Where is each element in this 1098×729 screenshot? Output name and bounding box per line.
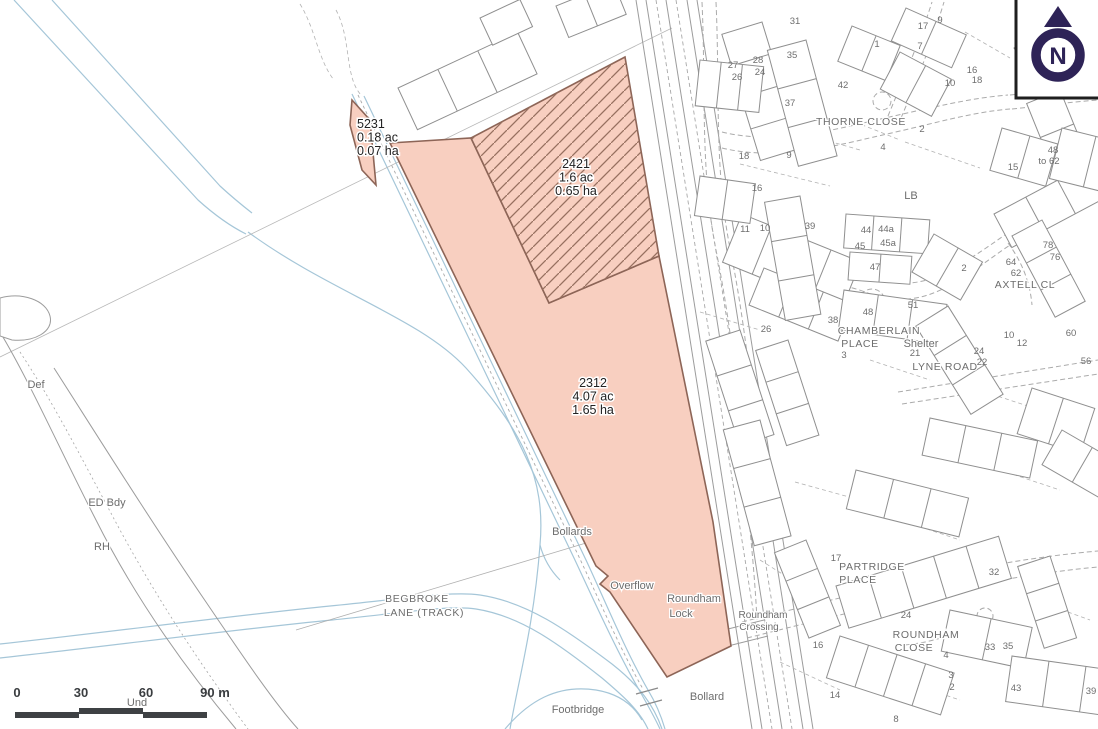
house-number: 17 <box>918 21 929 32</box>
street-label: PLACE <box>839 574 876 586</box>
house-number: 45a <box>880 238 897 249</box>
house-number: 35 <box>1003 641 1014 652</box>
house-number: 12 <box>1017 338 1028 349</box>
house-number: 11 <box>740 224 750 235</box>
house-number: 9 <box>786 150 791 161</box>
scale-label: 0 <box>13 685 20 700</box>
house-number: 78 <box>1043 240 1054 251</box>
scale-label: 90 m <box>200 685 230 700</box>
house-number: 76 <box>1050 252 1061 263</box>
house-number: 4 <box>943 650 948 661</box>
house-number: 10 <box>945 78 956 89</box>
street-label: PLACE <box>841 338 878 350</box>
house-number: 35 <box>787 50 798 61</box>
feature-label: Roundham <box>667 593 721 605</box>
house-number: 51 <box>908 300 919 311</box>
house-number: 42 <box>838 80 849 91</box>
street-label: THORNE CLOSE <box>816 116 906 128</box>
house-number: 3 <box>841 350 846 361</box>
parcel-label-5231: 0.07 ha <box>357 144 399 158</box>
house-number: 56 <box>1081 356 1092 367</box>
house-number: 38 <box>828 315 839 326</box>
house-number: 27 <box>728 60 739 71</box>
house-number: 7 <box>917 41 922 52</box>
house-number: 18 <box>972 75 983 86</box>
street-label: CLOSE <box>895 642 934 654</box>
house-number: 26 <box>761 324 772 335</box>
house-number: 48 <box>863 307 874 318</box>
feature-label: RH <box>94 541 110 553</box>
parcel-label-5231: 0.18 ac <box>357 131 398 145</box>
house-number: 45 <box>855 241 866 252</box>
map-canvas: 52310.18 ac0.07 ha24211.6 ac0.65 ha23124… <box>0 0 1098 729</box>
house-number: 3 <box>948 670 953 681</box>
house-number: 24 <box>755 67 766 78</box>
street-label: LYNE ROAD <box>912 361 977 373</box>
house-number: 16 <box>813 640 824 651</box>
building-block <box>846 470 968 537</box>
parcel-label-2312: 2312 <box>579 376 607 390</box>
street-label: PARTRIDGE <box>839 561 905 573</box>
north-letter: N <box>1049 43 1066 70</box>
house-number: 24 <box>901 610 912 621</box>
house-number: 16 <box>752 183 763 194</box>
scale-label: 30 <box>74 685 88 700</box>
feature-label: Bollards <box>552 526 592 538</box>
house-number: 28 <box>753 55 764 66</box>
building-block <box>556 0 626 38</box>
street-label: AXTELL CL <box>995 279 1055 291</box>
parcel-label-2421: 1.6 ac <box>559 171 593 185</box>
house-number: 14 <box>830 690 841 701</box>
building-block <box>1012 220 1085 317</box>
building-block <box>694 176 755 223</box>
house-number: 64 <box>1006 257 1017 268</box>
house-number: 15 <box>1008 162 1019 173</box>
feature-label: Bollard <box>690 691 724 703</box>
house-number: 9 <box>937 15 942 26</box>
house-number: 37 <box>785 98 796 109</box>
house-number: 22 <box>977 357 988 368</box>
house-number: 39 <box>805 221 816 232</box>
house-number: 39 <box>1086 686 1097 697</box>
street-label: ROUNDHAM <box>893 629 960 641</box>
parcel-label-2421: 0.65 ha <box>555 184 597 198</box>
house-number: to 62 <box>1038 156 1059 167</box>
house-number: 43 <box>1011 683 1022 694</box>
house-number: 44a <box>878 224 895 235</box>
house-number: 62 <box>1011 268 1022 279</box>
house-number: 1 <box>874 39 879 50</box>
feature-label: LB <box>904 190 917 202</box>
feature-label: ED Bdy <box>88 497 126 509</box>
parcel-map: 52310.18 ac0.07 ha24211.6 ac0.65 ha23124… <box>0 0 1098 729</box>
feature-label: Def <box>27 379 45 391</box>
building-block <box>723 420 791 546</box>
feature-label: Crossing <box>739 622 778 633</box>
house-number: 2 <box>919 124 924 135</box>
house-number: 2 <box>961 263 966 274</box>
house-number: 31 <box>790 16 801 27</box>
house-number: 21 <box>910 348 921 359</box>
feature-label: Footbridge <box>552 704 605 716</box>
street-label: CHAMBERLAIN <box>838 325 920 337</box>
parcel-label-2312: 4.07 ac <box>572 390 613 404</box>
house-number: 18 <box>739 151 750 162</box>
house-number: 44 <box>861 225 872 236</box>
parcel-label-2421: 2421 <box>562 157 590 171</box>
street-label: LANE (TRACK) <box>384 607 464 619</box>
house-number: 60 <box>1066 328 1077 339</box>
house-number: 48 <box>1048 145 1059 156</box>
house-number: 47 <box>870 262 881 273</box>
house-number: 10 <box>1004 330 1015 341</box>
house-number: 4 <box>880 142 885 153</box>
house-number: 8 <box>893 714 898 725</box>
scale-bar: 0306090 m <box>13 685 229 718</box>
feature-label: Overflow <box>610 580 653 592</box>
parcel-layer <box>350 57 731 677</box>
house-number: 32 <box>989 567 1000 578</box>
building-block <box>480 0 533 45</box>
parcel-label-5231: 5231 <box>357 117 385 131</box>
house-number: 10 <box>760 223 771 234</box>
north-arrow: N <box>1016 0 1098 98</box>
house-number: 2 <box>949 682 954 693</box>
house-number: 26 <box>732 72 743 83</box>
parcel-label-2312: 1.65 ha <box>572 403 614 417</box>
street-label: BEGBROKE <box>385 593 449 605</box>
house-number: 33 <box>985 642 996 653</box>
building-block <box>826 636 954 715</box>
house-number: 17 <box>831 553 842 564</box>
feature-label: Lock <box>669 608 693 620</box>
scale-label: 60 <box>139 685 153 700</box>
feature-label: Roundham <box>739 610 788 621</box>
house-number: 24 <box>974 346 985 357</box>
